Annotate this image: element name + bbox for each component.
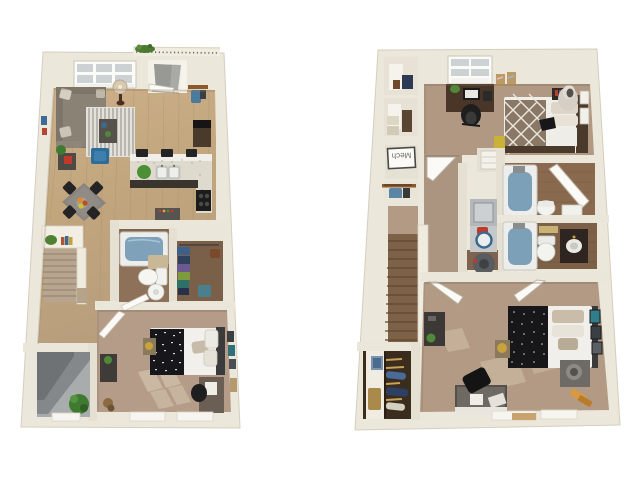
svg-text:Mech: Mech xyxy=(391,150,411,160)
